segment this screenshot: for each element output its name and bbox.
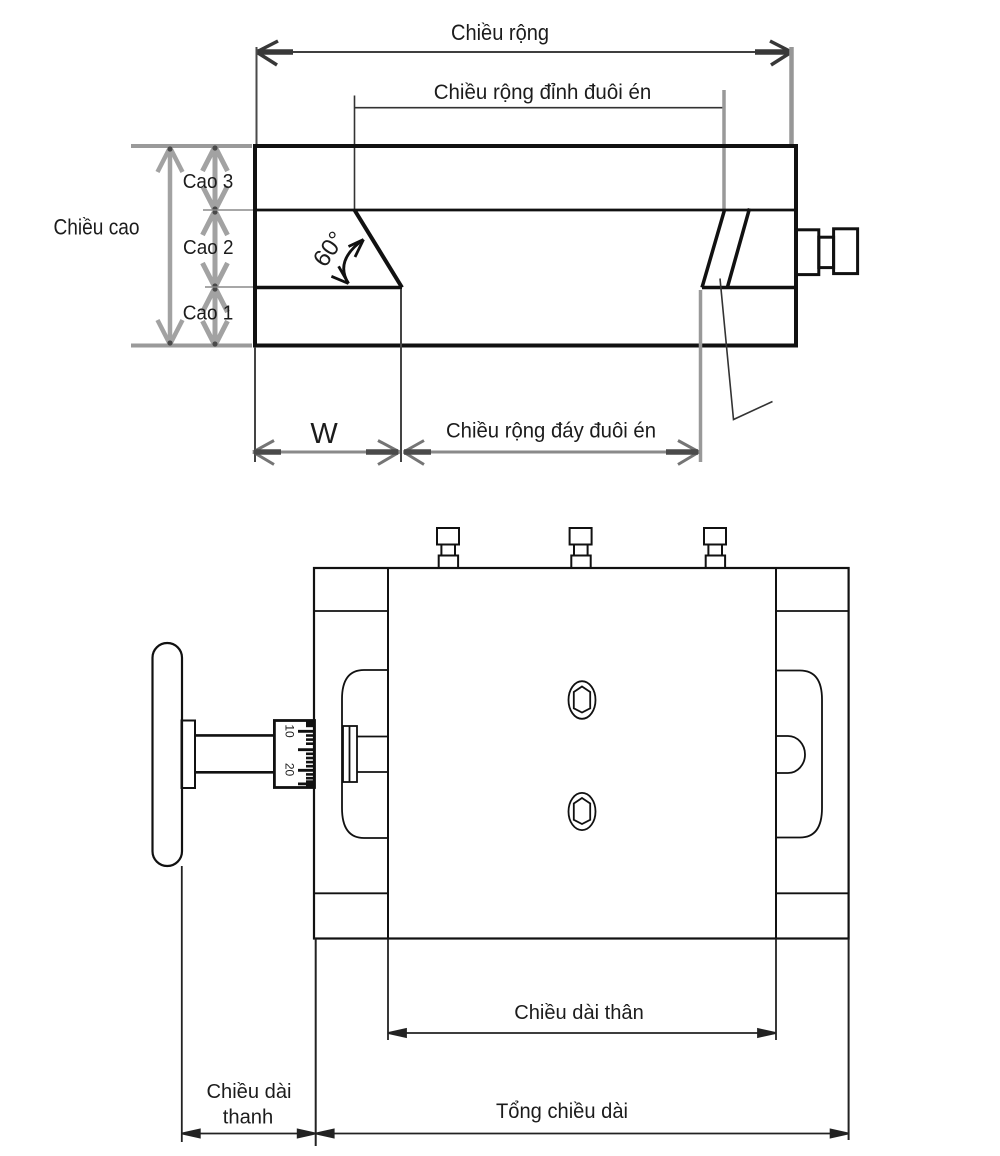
svg-text:Cao 2: Cao 2 — [183, 237, 234, 259]
svg-text:Tổng chiều dài: Tổng chiều dài — [496, 1100, 628, 1123]
svg-text:Chiều rộng: Chiều rộng — [451, 20, 549, 45]
svg-text:Chiều dài thân: Chiều dài thân — [514, 1002, 644, 1024]
svg-text:Cao 1: Cao 1 — [183, 303, 234, 325]
svg-text:Cao 3: Cao 3 — [183, 171, 234, 193]
svg-text:Chiều rộng đáy đuôi én: Chiều rộng đáy đuôi én — [446, 420, 656, 443]
svg-text:20: 20 — [283, 763, 297, 777]
svg-text:Chiều cao: Chiều cao — [54, 215, 140, 240]
svg-text:Chiều rộng đỉnh đuôi én: Chiều rộng đỉnh đuôi én — [434, 81, 652, 104]
svg-text:thanh: thanh — [223, 1107, 274, 1129]
svg-text:10: 10 — [283, 724, 297, 738]
svg-text:Chiều dài: Chiều dài — [207, 1081, 292, 1103]
svg-text:W: W — [310, 418, 338, 450]
